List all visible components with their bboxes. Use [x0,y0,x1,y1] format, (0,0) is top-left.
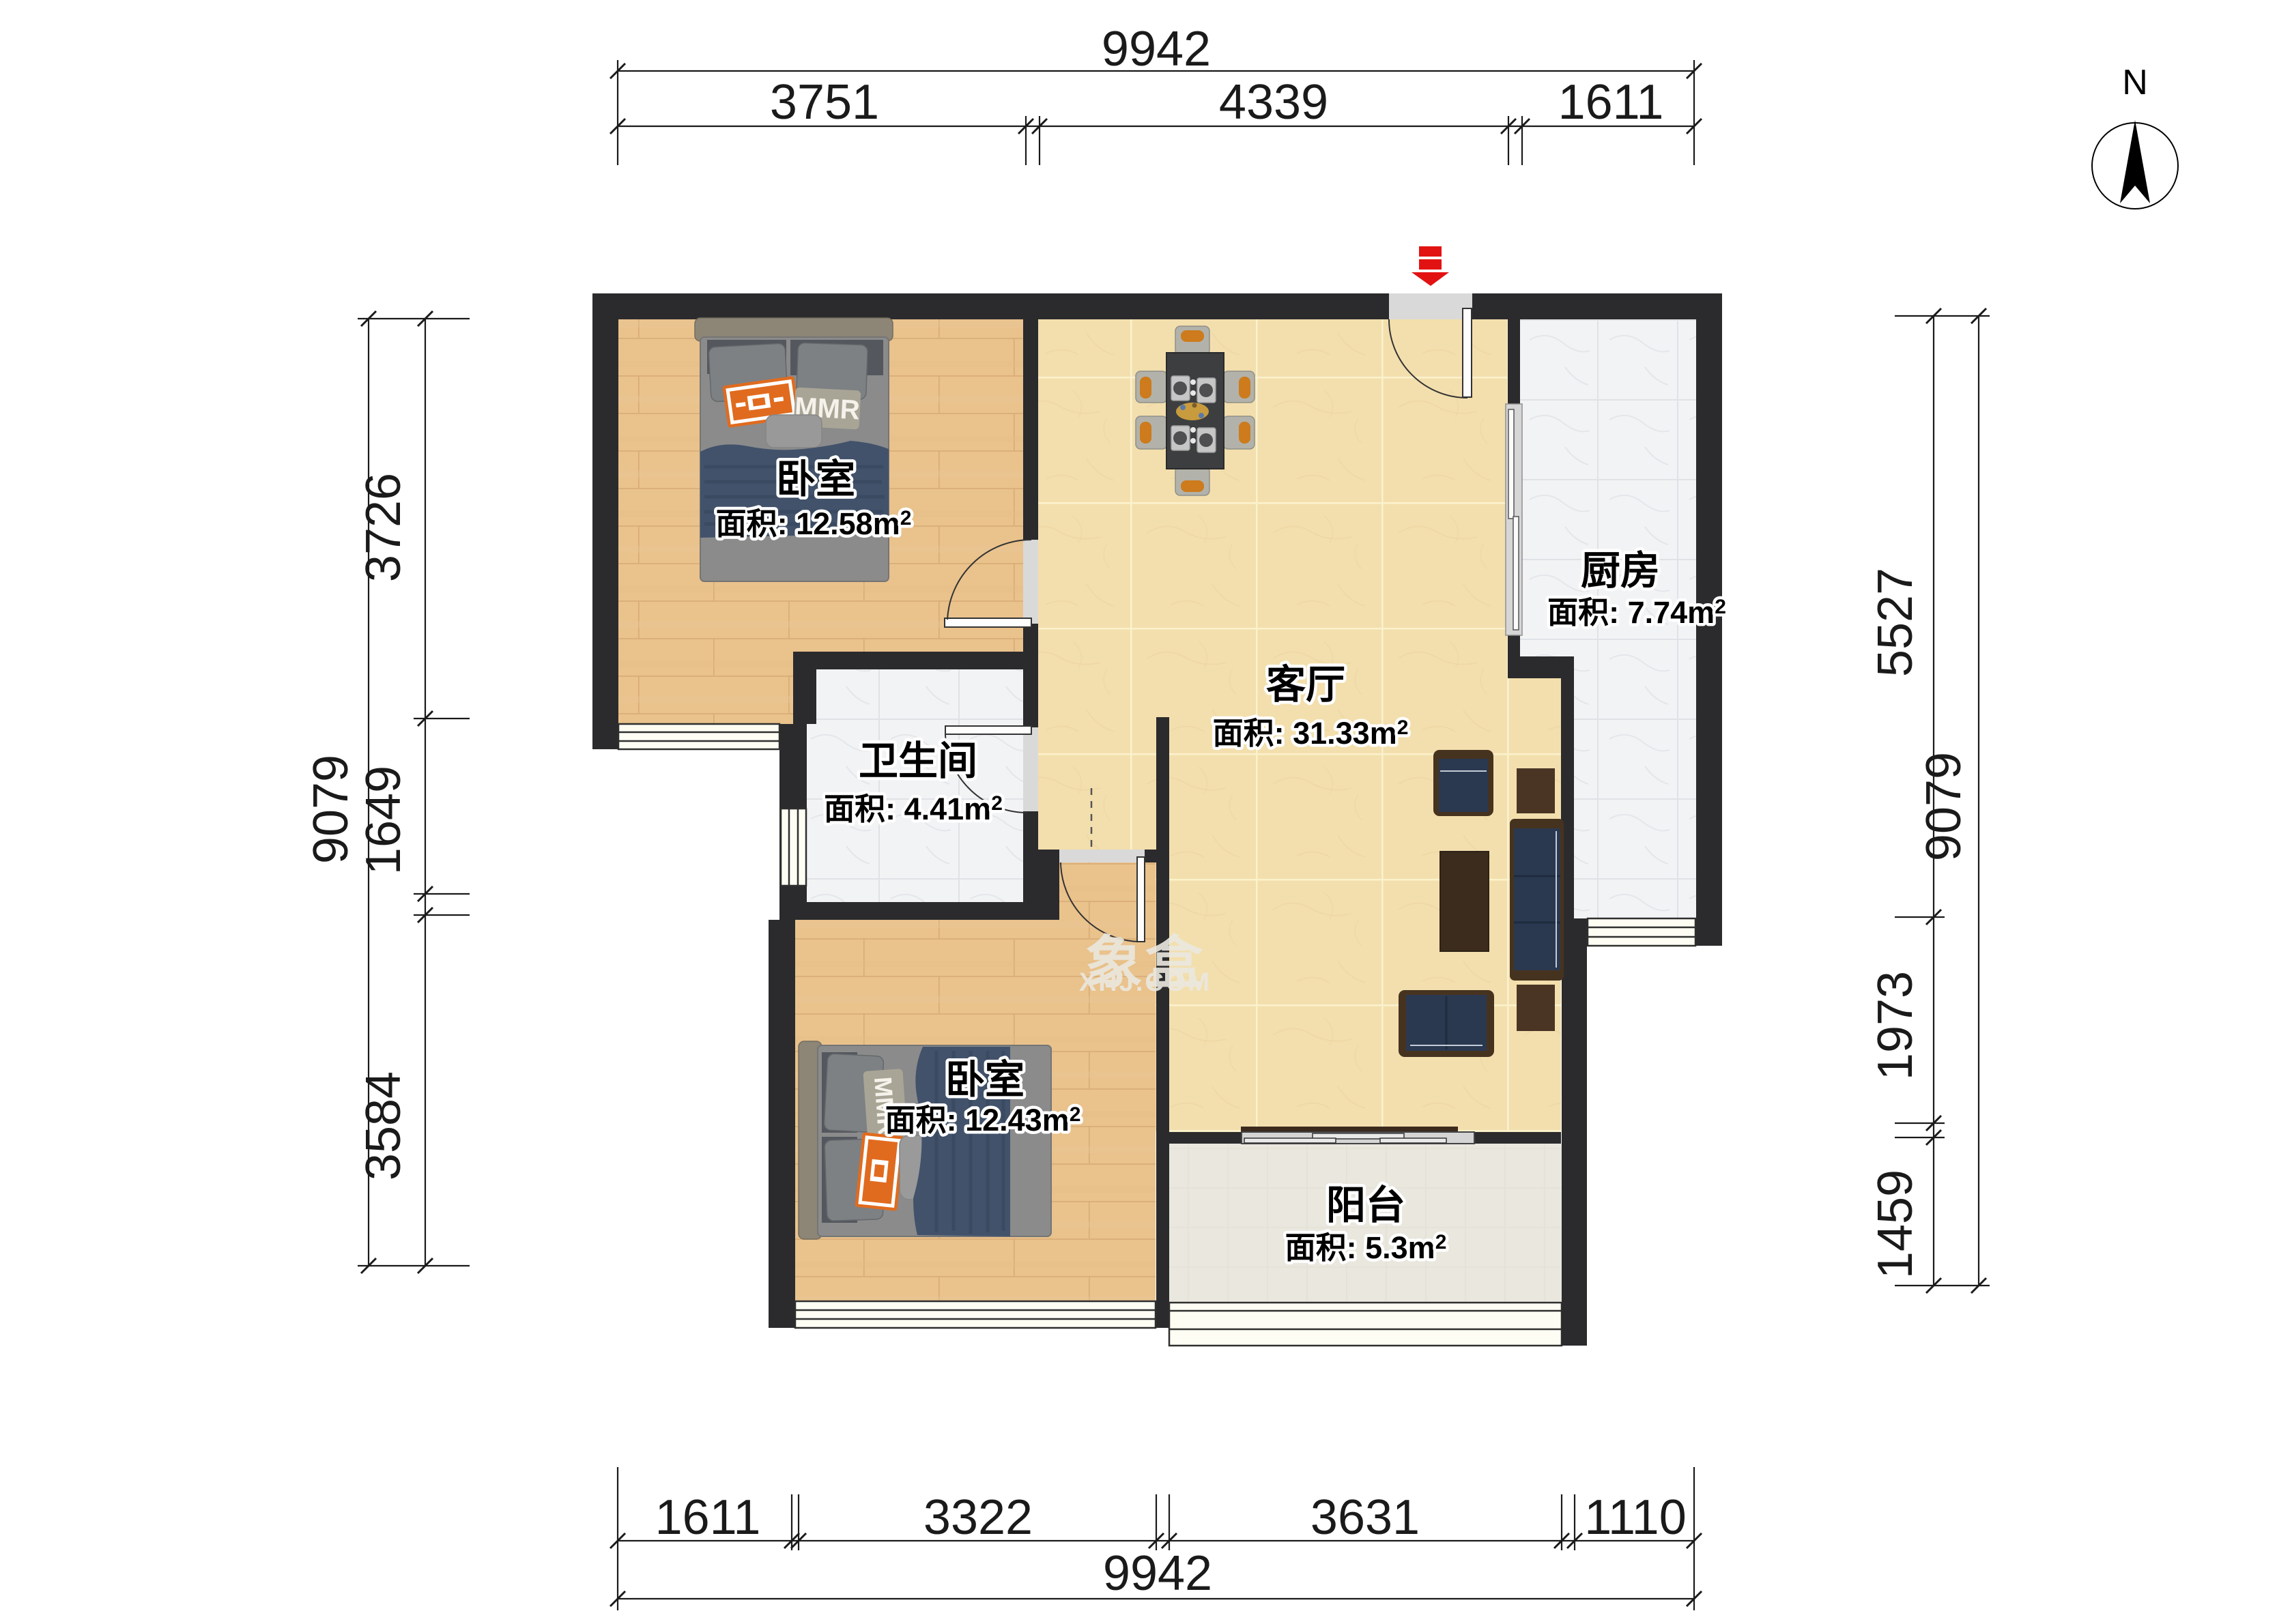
svg-text:N: N [2122,63,2148,102]
svg-text:3584: 3584 [356,1071,411,1180]
svg-text:阳台: 阳台 [1326,1183,1405,1228]
svg-text:卧室: 卧室 [945,1058,1025,1102]
svg-text:面积: 31.33m2: 面积: 31.33m2 [1213,716,1409,751]
svg-text:面积: 12.43m2: 面积: 12.43m2 [885,1103,1081,1137]
svg-text:1973: 1973 [1868,971,1923,1080]
svg-text:5527: 5527 [1868,568,1923,677]
svg-text:4339: 4339 [1219,75,1328,130]
svg-text:3751: 3751 [770,75,879,130]
svg-text:3631: 3631 [1310,1490,1420,1545]
svg-text:1649: 1649 [356,766,411,875]
svg-text:面积: 5.3m2: 面积: 5.3m2 [1285,1230,1447,1265]
svg-text:9079: 9079 [1917,752,1971,861]
svg-text:9942: 9942 [1102,22,1211,76]
svg-text:3322: 3322 [923,1490,1033,1545]
svg-text:厨房: 厨房 [1581,549,1660,593]
svg-text:9942: 9942 [1103,1546,1212,1601]
svg-text:1459: 1459 [1868,1170,1923,1279]
svg-text:卫生间: 卫生间 [859,739,977,783]
svg-text:1611: 1611 [655,1490,761,1545]
svg-text:面积: 7.74m2: 面积: 7.74m2 [1547,595,1726,630]
svg-text:XHJ.COM: XHJ.COM [1079,968,1212,997]
svg-text:卧室: 卧室 [776,457,855,502]
svg-text:1611: 1611 [1558,75,1664,130]
svg-text:面积: 4.41m2: 面积: 4.41m2 [824,792,1003,826]
svg-text:9079: 9079 [304,755,358,864]
svg-text:3726: 3726 [356,473,411,582]
svg-text:1110: 1110 [1584,1490,1686,1545]
svg-text:客厅: 客厅 [1266,663,1345,707]
svg-text:面积: 12.58m2: 面积: 12.58m2 [716,506,912,541]
